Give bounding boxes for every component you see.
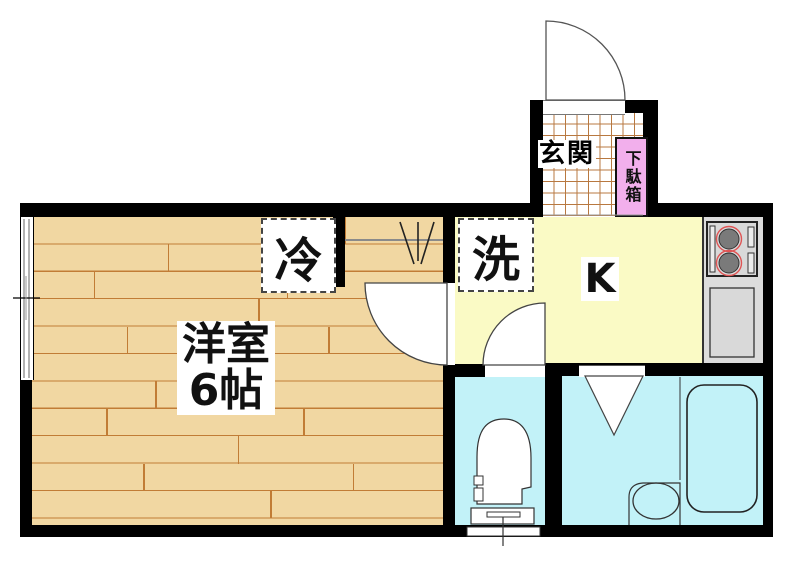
bathroom-floor (562, 376, 763, 525)
kitchen-counter (702, 217, 765, 365)
wall-toilet-bath (545, 363, 562, 525)
shoe-cabinet-label: 下駄箱 (620, 150, 644, 204)
refrigerator-label: 冷 (274, 221, 322, 291)
plank-joint (238, 436, 240, 463)
plank-joint (143, 464, 145, 491)
main-room-name: 洋室 (182, 319, 270, 370)
kitchen-label: K (585, 256, 616, 302)
plank-joint (168, 244, 170, 271)
entrance-door-arc (546, 21, 625, 100)
floor-plan: 冷 洗 洋室 6帖 K 玄関 下駄箱 (0, 0, 800, 562)
wall-bottom (20, 525, 773, 537)
wall-divider-bottom (443, 364, 455, 525)
washer-space: 洗 (458, 218, 534, 292)
plank-joint (328, 327, 330, 354)
plank-joint (106, 409, 108, 436)
entrance-door-threshold (543, 100, 625, 115)
plank-joint (94, 272, 96, 299)
plank-joint (127, 327, 129, 354)
toilet-room-floor (455, 376, 545, 525)
wall-top-right (658, 203, 773, 217)
wall-divider-top (443, 203, 455, 283)
window (20, 217, 34, 380)
plank-joint (155, 381, 157, 408)
refrigerator-space: 冷 (261, 218, 336, 293)
shoe-cabinet: 下駄箱 (615, 137, 648, 217)
wall-left-lower (20, 380, 32, 525)
wall-toilet-top (443, 364, 487, 377)
plank-joint (270, 491, 272, 518)
room-door-threshold (444, 283, 455, 365)
main-room-label: 洋室 6帖 (177, 321, 275, 415)
toilet-door-threshold (485, 365, 545, 377)
washer-label: 洗 (472, 220, 520, 290)
wall-right (763, 203, 773, 537)
entrance-label: 玄関 (538, 140, 596, 168)
bath-door-threshold (579, 365, 645, 377)
plank-joint (353, 464, 355, 491)
main-room-size: 6帖 (189, 365, 264, 416)
wall-entrance-top-right (625, 100, 658, 113)
plank-joint (303, 409, 305, 436)
kitchen-label-box: K (581, 257, 619, 301)
